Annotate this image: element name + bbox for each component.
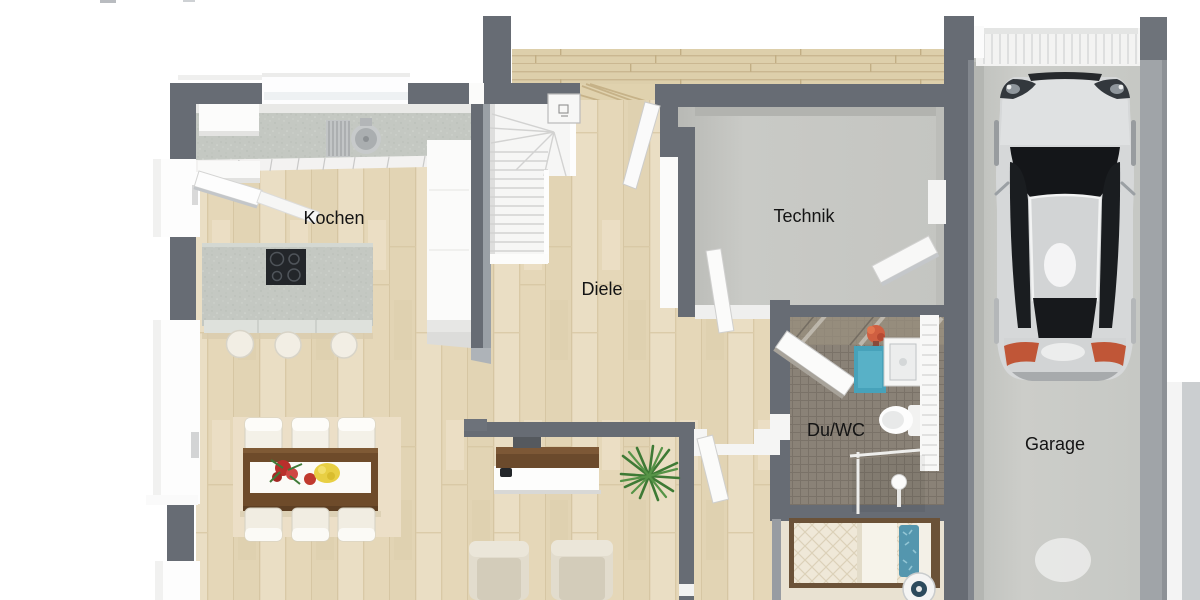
svg-text:Technik: Technik: [773, 206, 835, 226]
svg-text:Garage: Garage: [1025, 434, 1085, 454]
svg-text:Diele: Diele: [581, 279, 622, 299]
svg-text:Kochen: Kochen: [303, 208, 364, 228]
svg-text:Du/WC: Du/WC: [807, 420, 865, 440]
